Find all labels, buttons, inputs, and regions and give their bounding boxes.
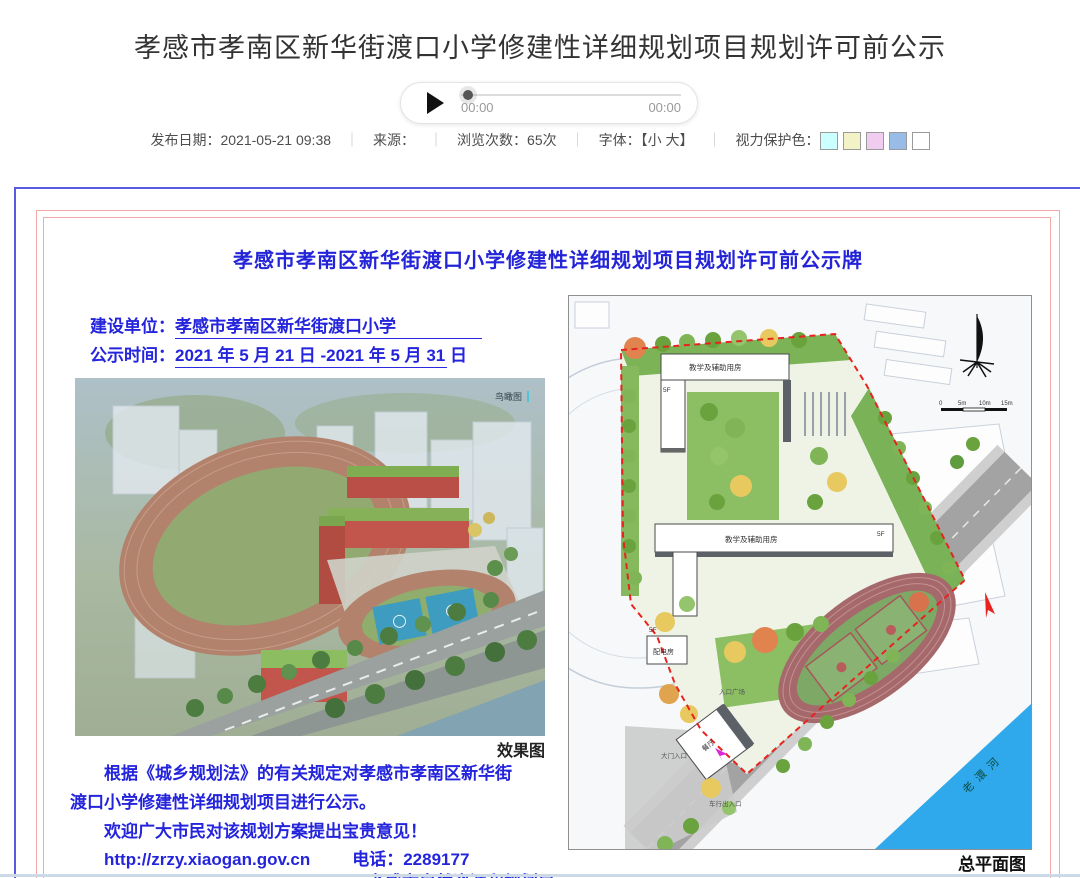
period-line: 公示时间：2021 年 5 月 21 日 -2021 年 5 月 31 日: [90, 341, 447, 368]
phone-number: 电话：2289177: [352, 850, 469, 869]
font-smaller-button[interactable]: 小: [648, 132, 662, 148]
bottom-divider: [0, 874, 1080, 877]
period-value: 2021 年 5 月 21 日 -2021 年 5 月 31 日: [175, 341, 447, 368]
source-label: 来源：: [373, 130, 415, 150]
website-link[interactable]: http://zrzy.xiaogan.gov.cn: [104, 850, 310, 869]
view-count: 浏览次数：65次: [457, 130, 557, 150]
svg-text:5m: 5m: [958, 401, 966, 407]
aerial-rendering-image: 鸟瞰图: [75, 378, 545, 736]
builder-value: 孝感市孝南区新华街渡口小学: [175, 312, 482, 339]
play-icon[interactable]: [427, 92, 444, 114]
audio-progress-handle[interactable]: [463, 90, 473, 100]
publish-date: 发布日期：2021-05-21 09:38: [150, 130, 331, 150]
gate-entrance-label: 大门入口: [661, 751, 687, 760]
period-label: 公示时间：: [90, 346, 175, 365]
power-room-label: 配电房: [653, 647, 674, 656]
eye-color-swatch[interactable]: [843, 132, 861, 150]
audio-player[interactable]: 00:00 00:00: [400, 82, 698, 124]
board-title: 孝感市孝南区新华街渡口小学修建性详细规划项目规划许可前公示牌: [43, 244, 1053, 273]
font-larger-button[interactable]: 大: [666, 132, 680, 148]
public-notice-page: 孝感市孝南区新华街渡口小学修建性详细规划项目规划许可前公示 00:00 00:0…: [0, 0, 1080, 878]
eye-color-swatch[interactable]: [820, 132, 838, 150]
notice-line: 渡口小学修建性详细规划项目进行公示。: [70, 788, 555, 813]
floor-tag: 5F: [649, 627, 657, 634]
builder-label: 建设单位：: [90, 317, 175, 336]
svg-text:鸟瞰图: 鸟瞰图: [495, 391, 522, 402]
page-title: 孝感市孝南区新华街渡口小学修建性详细规划项目规划许可前公示: [0, 26, 1080, 65]
separator: ｜: [708, 130, 722, 150]
notice-line: 欢迎广大市民对该规划方案提出宝贵意见！: [70, 817, 555, 842]
building-label: 教学及辅助用房: [725, 534, 778, 544]
eye-color-swatch[interactable]: [912, 132, 930, 150]
eye-color-swatch[interactable]: [889, 132, 907, 150]
eye-color-swatch[interactable]: [866, 132, 884, 150]
eye-protect-control: 视力保护色：: [736, 130, 930, 150]
vehicle-entrance-label: 车行出入口: [709, 799, 742, 808]
separator: ｜: [429, 130, 443, 150]
font-size-control: 字体：【小 大】: [599, 130, 694, 150]
separator: ｜: [345, 130, 359, 150]
audio-progress-bar[interactable]: [461, 94, 681, 96]
contact-line: http://zrzy.xiaogan.gov.cn电话：2289177: [70, 845, 555, 870]
floor-tag: 5F: [663, 387, 671, 394]
audio-total-time: 00:00: [648, 100, 681, 115]
site-plan-image: 老澴河 沿河北路: [568, 295, 1032, 850]
article-meta-bar: 发布日期：2021-05-21 09:38 ｜ 来源： ｜ 浏览次数：65次 ｜…: [0, 130, 1080, 150]
entrance-plaza-label: 入口广场: [719, 687, 746, 696]
builder-line: 建设单位：孝感市孝南区新华街渡口小学: [90, 312, 482, 339]
audio-current-time: 00:00: [461, 100, 494, 115]
svg-text:10m: 10m: [979, 401, 991, 407]
eye-color-swatches: [820, 132, 930, 150]
notice-line: 根据《城乡规划法》的有关规定对孝感市孝南区新华街: [70, 759, 555, 784]
floor-tag: 5F: [877, 531, 885, 538]
plan-caption: 总平面图: [568, 850, 1026, 875]
separator: ｜: [571, 130, 585, 150]
svg-text:15m: 15m: [1001, 401, 1013, 407]
building-label: 教学及辅助用房: [689, 362, 742, 372]
render-caption: 效果图: [75, 737, 545, 761]
